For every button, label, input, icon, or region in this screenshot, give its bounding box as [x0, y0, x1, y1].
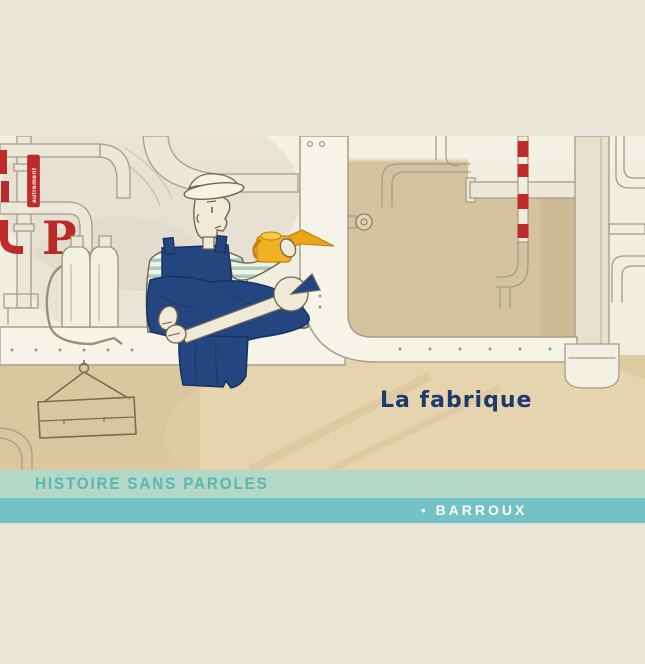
- book-title: La fabrique: [380, 388, 532, 413]
- publisher-badge: autrement: [28, 155, 40, 207]
- cover-illustration: autrement P: [0, 136, 645, 470]
- factory-scene: autrement P: [0, 136, 645, 470]
- publisher-logo-text: autrement: [31, 167, 38, 203]
- author-band: •BARROUX: [0, 498, 645, 523]
- overalls-leg: [179, 335, 248, 388]
- series-band: HISTOIRE SANS PAROLES: [0, 470, 645, 498]
- author-name: •BARROUX: [421, 498, 527, 523]
- book-cover: autrement P: [0, 0, 645, 664]
- bottom-margin: [0, 523, 645, 664]
- column-base-flange: [565, 344, 619, 388]
- series-title: HISTOIRE SANS PAROLES: [35, 470, 269, 498]
- author-label: BARROUX: [436, 502, 528, 518]
- bullet-icon: •: [421, 503, 429, 518]
- top-margin: [0, 0, 645, 136]
